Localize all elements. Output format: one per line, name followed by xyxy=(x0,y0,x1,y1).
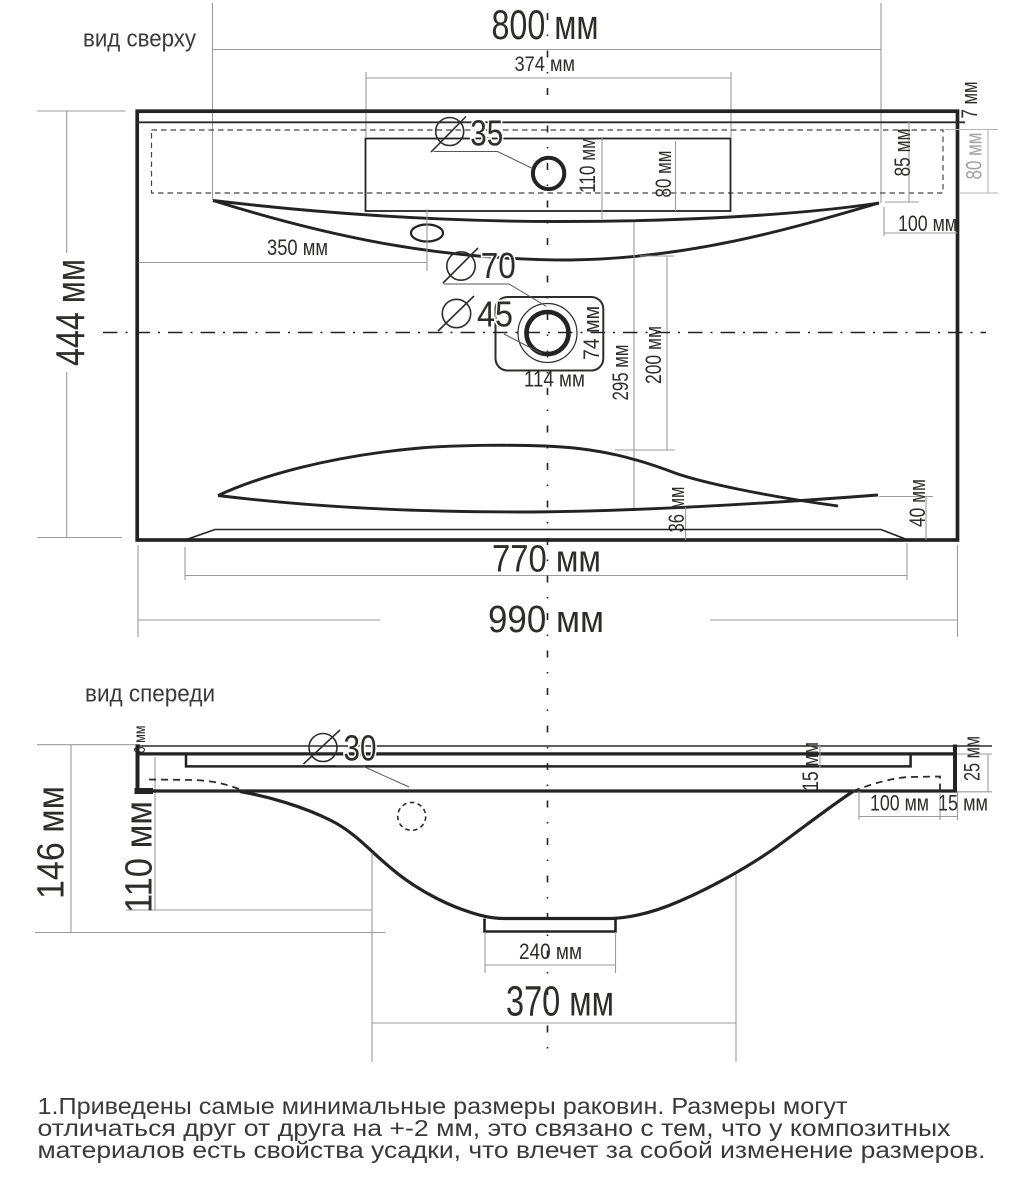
svg-text:374 мм: 374 мм xyxy=(515,53,576,76)
svg-text:85 мм: 85 мм xyxy=(890,129,915,177)
svg-text:350 мм: 350 мм xyxy=(267,235,328,260)
svg-text:114 мм: 114 мм xyxy=(524,367,585,392)
svg-text:110 мм: 110 мм xyxy=(119,801,161,913)
svg-text:200 мм: 200 мм xyxy=(641,326,666,384)
svg-text:25 мм: 25 мм xyxy=(960,736,985,781)
svg-text:80 мм: 80 мм xyxy=(651,151,676,198)
svg-text:146 мм: 146 мм xyxy=(31,786,73,899)
svg-text:370 мм: 370 мм xyxy=(506,978,614,1026)
svg-text:770 мм: 770 мм xyxy=(492,539,601,581)
svg-text:40 мм: 40 мм xyxy=(905,479,930,527)
svg-text:15 мм: 15 мм xyxy=(798,742,823,791)
svg-text:30: 30 xyxy=(344,728,377,769)
svg-text:45: 45 xyxy=(477,293,513,334)
svg-text:36 мм: 36 мм xyxy=(664,487,689,533)
svg-text:материалов есть свойства усадк: материалов есть свойства усадки, что вле… xyxy=(38,1137,986,1163)
svg-text:6 мм: 6 мм xyxy=(132,726,149,754)
svg-text:35: 35 xyxy=(470,112,503,153)
svg-text:100 мм: 100 мм xyxy=(898,211,957,236)
svg-text:295 мм: 295 мм xyxy=(608,345,633,401)
svg-text:15 мм: 15 мм xyxy=(938,791,988,816)
svg-text:110 мм: 110 мм xyxy=(575,137,600,193)
svg-text:7 мм: 7 мм xyxy=(957,82,982,119)
svg-text:вид сверху: вид сверху xyxy=(83,26,196,53)
svg-text:800 мм: 800 мм xyxy=(492,1,599,48)
svg-text:240 мм: 240 мм xyxy=(519,939,582,964)
svg-text:вид спереди: вид спереди xyxy=(85,681,215,708)
svg-text:444 мм: 444 мм xyxy=(48,259,94,366)
svg-text:80 мм: 80 мм xyxy=(962,133,987,180)
svg-text:100 мм: 100 мм xyxy=(870,791,929,816)
svg-text:70: 70 xyxy=(481,245,516,286)
svg-text:990 мм: 990 мм xyxy=(488,599,604,641)
